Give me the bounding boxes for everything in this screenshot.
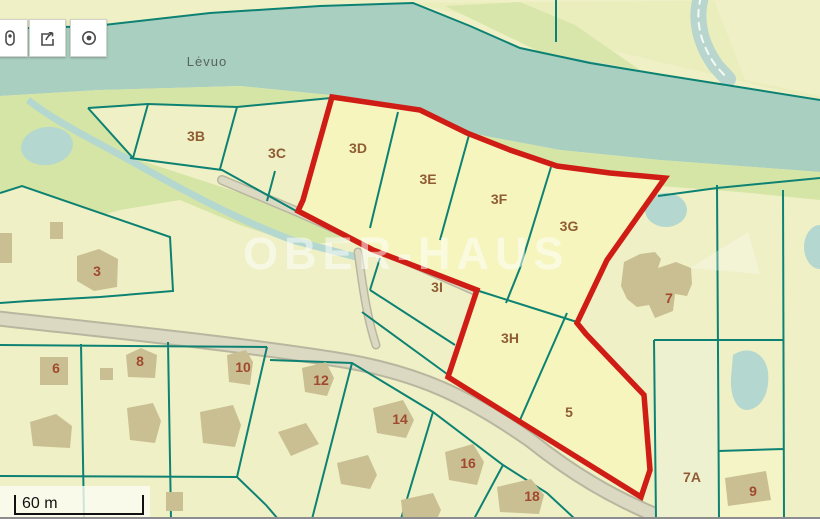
share-icon (38, 28, 58, 48)
building (0, 233, 12, 263)
building (30, 414, 72, 448)
parcel-label: 14 (392, 411, 408, 427)
building (100, 368, 113, 380)
river-label: Lėvuo (187, 54, 227, 69)
parcel-label: 8 (136, 353, 144, 369)
building (278, 423, 319, 456)
parcel-label: 6 (52, 360, 60, 376)
parcel-label: 7 (665, 290, 673, 306)
parcel-label: 18 (524, 488, 540, 504)
parcel-label: 9 (749, 483, 757, 499)
building (337, 455, 377, 489)
locate-button[interactable] (70, 19, 107, 57)
parcel-label: 16 (460, 455, 476, 471)
parcel-label: 5 (565, 404, 573, 420)
parcel-label: 12 (313, 372, 329, 388)
parcel-label: 3B (187, 128, 205, 144)
map-marker-icon (0, 28, 20, 48)
watermark-logo (690, 232, 760, 274)
building (50, 222, 63, 239)
parcel-label: 3D (349, 140, 367, 156)
parcel-label: 3E (419, 171, 436, 187)
building (621, 252, 692, 318)
parcel-label: 3F (491, 191, 508, 207)
building (166, 492, 183, 511)
building (200, 405, 241, 447)
scale-bar-label: 60 m (22, 495, 58, 513)
parcel-label: 3C (268, 145, 286, 161)
parcel-label: 3G (560, 218, 579, 234)
parcel-label: 3H (501, 330, 519, 346)
pond (804, 225, 820, 269)
locate-icon (79, 28, 99, 48)
parcel-label: 10 (235, 359, 251, 375)
building (127, 403, 161, 443)
map-canvas[interactable]: Lėvuo 3B 3C 3D 3E 3F 3G 3I 3H 5 3 6 8 10… (0, 0, 820, 519)
parcel-label: 3I (431, 279, 443, 295)
parcel-label: 3 (93, 263, 101, 279)
scale-bar: 60 m (0, 486, 150, 517)
map-viewer: Lėvuo 3B 3C 3D 3E 3F 3G 3I 3H 5 3 6 8 10… (0, 0, 820, 519)
map-marker-button[interactable] (0, 19, 28, 57)
pond (731, 350, 768, 410)
share-button[interactable] (29, 19, 66, 57)
parcel-label: 7A (683, 469, 701, 485)
